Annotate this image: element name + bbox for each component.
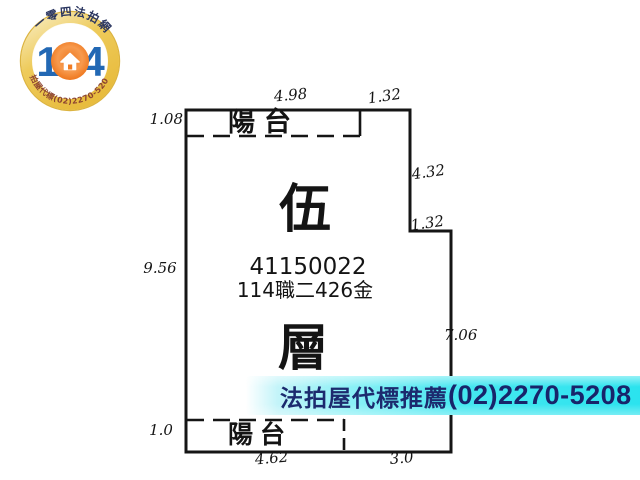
dim-left-balcony-depth: 1.08 (150, 110, 183, 128)
dim-top-right-width: 1.32 (367, 85, 403, 107)
top-balcony-label: 陽台 (228, 106, 300, 138)
dim-bottom-left-width: 4.62 (253, 448, 289, 469)
promo-banner: 法拍屋代標推薦(02)2270-5208 (246, 376, 640, 415)
dim-top-balcony-width: 4.98 (272, 85, 308, 106)
dim-right-lower-height: 7.06 (444, 326, 478, 344)
dim-bottom-balcony-depth: 1.0 (149, 421, 173, 439)
floor-character-upper: 伍 (279, 180, 331, 240)
case-reference: 114職二426金 (237, 278, 373, 302)
promo-phone-number: (02)2270-5208 (448, 380, 632, 411)
promo-text: 法拍屋代標推薦 (280, 379, 448, 413)
floor-character-lower: 層 (278, 319, 328, 377)
dim-right-upper-height: 4.32 (410, 161, 447, 184)
dim-left-height: 9.56 (143, 259, 177, 277)
floorplan-page: 4.98 1.32 1.08 4.32 1.32 9.56 7.06 1.0 4… (0, 0, 640, 480)
site-logo-badge: 1 4 一零四法拍網 法拍屋代標(02)2270-5208 (18, 6, 122, 114)
bottom-balcony-label: 陽台 (228, 420, 292, 449)
case-number: 41150022 (249, 254, 366, 280)
dim-bottom-right-width: 3.0 (389, 448, 415, 468)
house-door (68, 65, 72, 70)
